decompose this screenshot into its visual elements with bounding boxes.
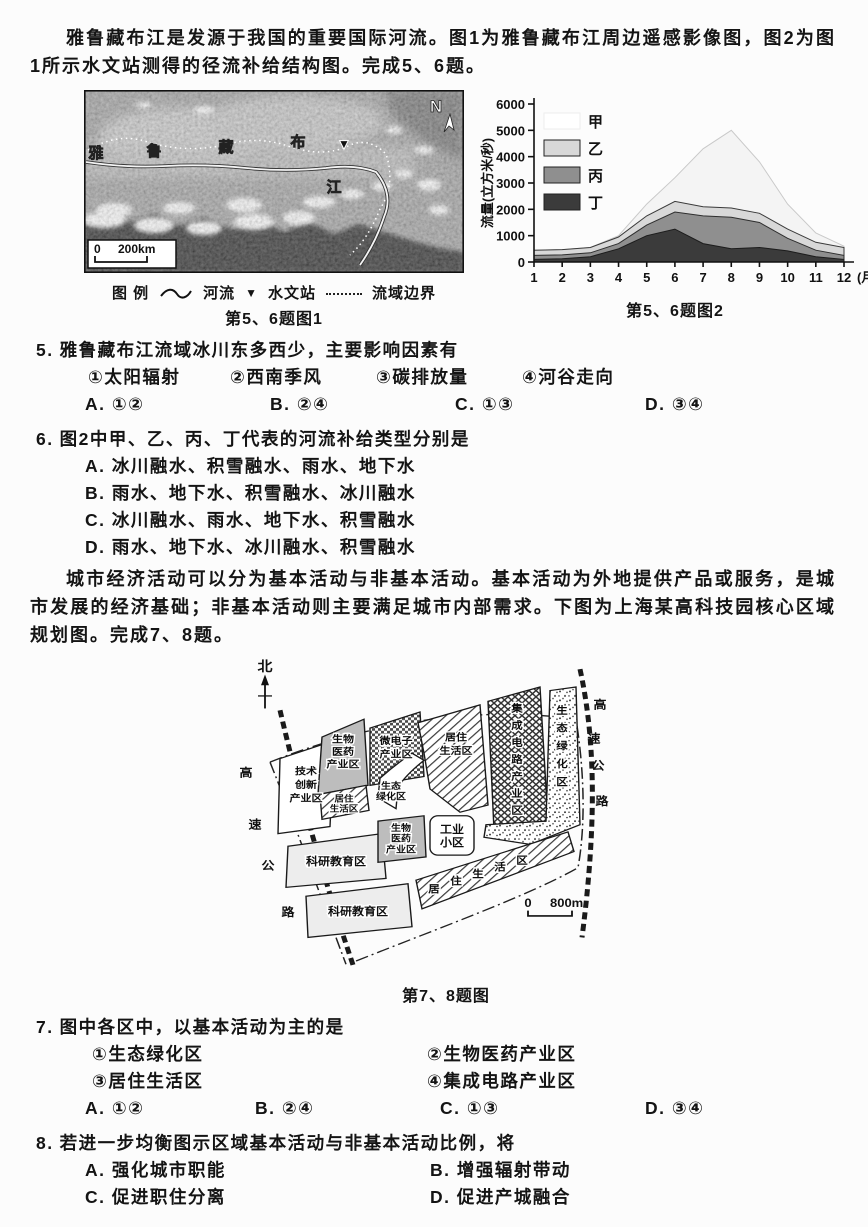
answer-choice: D. ③④ bbox=[645, 1095, 848, 1122]
legend-swatch-甲 bbox=[544, 113, 580, 129]
station-symbol-icon: ▼ bbox=[245, 286, 258, 300]
boundary-symbol-icon bbox=[326, 293, 362, 295]
question-7-suboptions-row2: ③居住生活区 ④集成电路产业区 bbox=[30, 1068, 848, 1095]
answer-choice: D. 雨水、地下水、冰川融水、积雪融水 bbox=[30, 534, 848, 561]
svg-text:公: 公 bbox=[591, 759, 605, 772]
river-char: 布 bbox=[290, 133, 305, 151]
suboption: ②生物医药产业区 bbox=[427, 1041, 848, 1068]
question-7: 7.图中各区中，以基本活动为主的是 ①生态绿化区 ②生物医药产业区 ③居住生活区… bbox=[30, 1014, 848, 1122]
y-tick-label: 2000 bbox=[496, 202, 525, 217]
figure-row: 雅 鲁 藏 布 江 ▼ N 0 200km bbox=[84, 90, 848, 329]
scale-distance: 800m bbox=[550, 897, 583, 910]
svg-text:公: 公 bbox=[261, 859, 275, 872]
north-arrow-icon bbox=[261, 674, 269, 685]
intro-paragraph-2: 城市经济活动可以分为基本活动与非基本活动。基本活动为外地提供产品或服务，是城市发… bbox=[30, 565, 836, 649]
river-symbol-icon bbox=[159, 286, 193, 300]
legend-swatch-乙 bbox=[544, 140, 580, 156]
y-axis-label: 流量(立方米/秒) bbox=[480, 138, 495, 228]
question-5-answers: A. ①② B. ②④ C. ①③ D. ③④ bbox=[30, 391, 848, 418]
svg-text:路: 路 bbox=[281, 905, 295, 919]
figure3-planning-map: 技术创新产业区 生物医药产业区 微电子产业区 居住生活区 集 成 电 路 产 业… bbox=[228, 653, 664, 1006]
tech-park-plan: 技术创新产业区 生物医药产业区 微电子产业区 居住生活区 集 成 电 路 产 业… bbox=[228, 653, 658, 975]
suboption: ④集成电路产业区 bbox=[427, 1068, 848, 1095]
answer-choice: C. 冰川融水、雨水、地下水、积雪融水 bbox=[30, 507, 848, 534]
north-arrow: 北 bbox=[257, 659, 273, 709]
question-5-suboptions: ①太阳辐射 ②西南季风 ③碳排放量 ④河谷走向 bbox=[30, 364, 848, 391]
answer-choice: B. 增强辐射带动 bbox=[430, 1157, 848, 1184]
figure1-satellite: 雅 鲁 藏 布 江 ▼ N 0 200km bbox=[84, 90, 464, 329]
zone-label-eco-center: 生态绿化区 bbox=[376, 780, 407, 802]
y-tick-label: 5000 bbox=[496, 123, 525, 138]
north-label: N bbox=[430, 97, 442, 116]
x-tick-label: 3 bbox=[587, 270, 594, 285]
answer-choice: C. 促进职住分离 bbox=[85, 1184, 430, 1211]
answer-choice: C. ①③ bbox=[455, 391, 645, 418]
suboption: ③居住生活区 bbox=[92, 1068, 427, 1095]
svg-text:生: 生 bbox=[556, 703, 568, 716]
svg-text:产: 产 bbox=[511, 770, 523, 783]
scale-distance: 200km bbox=[118, 242, 155, 256]
question-number: 6. bbox=[36, 429, 54, 449]
question-6: 6.图2中甲、乙、丙、丁代表的河流补给类型分别是 A. 冰川融水、积雪融水、雨水… bbox=[30, 426, 848, 561]
svg-text:高: 高 bbox=[593, 697, 606, 711]
scale-zero: 0 bbox=[94, 242, 101, 256]
question-6-stem: 6.图2中甲、乙、丙、丁代表的河流补给类型分别是 bbox=[30, 426, 848, 453]
question-8-options-row1: A. 强化城市职能 B. 增强辐射带动 bbox=[30, 1157, 848, 1184]
legend-label-丁: 丁 bbox=[588, 195, 603, 212]
answer-choice: B. ②④ bbox=[270, 391, 455, 418]
svg-text:高: 高 bbox=[239, 765, 252, 779]
svg-text:绿: 绿 bbox=[556, 739, 568, 752]
y-tick-label: 0 bbox=[518, 255, 525, 270]
zone-label-sci-north: 科研教育区 bbox=[306, 855, 367, 868]
north-label: 北 bbox=[257, 659, 273, 675]
legend-title: 图 例 bbox=[112, 282, 149, 303]
river-char: 藏 bbox=[218, 138, 233, 156]
svg-text:路: 路 bbox=[595, 794, 609, 808]
river-char: 鲁 bbox=[146, 142, 161, 160]
intro-paragraph-1: 雅鲁藏布江是发源于我国的重要国际河流。图1为雅鲁藏布江周边遥感影像图，图2为图1… bbox=[30, 24, 836, 80]
legend-label-丙: 丙 bbox=[588, 168, 603, 185]
chart-legend: 甲乙丙丁 bbox=[544, 113, 603, 212]
figure3-caption: 第7、8题图 bbox=[228, 982, 664, 1006]
y-tick-label: 3000 bbox=[496, 176, 525, 191]
x-tick-label: 9 bbox=[756, 270, 763, 285]
map-scale: 0 800m bbox=[524, 897, 583, 916]
x-tick-label: 2 bbox=[559, 270, 566, 285]
satellite-image: 雅 鲁 藏 布 江 ▼ N 0 200km bbox=[84, 90, 464, 273]
zone-residential-main[interactable] bbox=[418, 705, 488, 812]
figure2-chart: 0100020003000400050006000123456789101112… bbox=[476, 90, 868, 321]
y-tick-label: 1000 bbox=[496, 229, 525, 244]
svg-text:电: 电 bbox=[511, 736, 523, 749]
question-7-stem: 7.图中各区中，以基本活动为主的是 bbox=[30, 1014, 848, 1041]
question-8-options-row2: C. 促进职住分离 D. 促进产城融合 bbox=[30, 1184, 848, 1211]
svg-text:居: 居 bbox=[428, 883, 440, 895]
question-text: 图2中甲、乙、丙、丁代表的河流补给类型分别是 bbox=[60, 429, 470, 449]
legend-swatch-丁 bbox=[544, 194, 580, 210]
answer-choice: D. 促进产城融合 bbox=[430, 1184, 848, 1211]
svg-text:业: 业 bbox=[511, 787, 523, 800]
legend-swatch-丙 bbox=[544, 167, 580, 183]
suboption: ④河谷走向 bbox=[522, 364, 848, 391]
answer-choice: B. ②④ bbox=[255, 1095, 440, 1122]
svg-text:生: 生 bbox=[472, 867, 484, 880]
question-8-stem: 8.若进一步均衡图示区域基本活动与非基本活动比例，将 bbox=[30, 1130, 848, 1157]
x-tick-label: 11 bbox=[809, 270, 823, 285]
question-text: 若进一步均衡图示区域基本活动与非基本活动比例，将 bbox=[60, 1133, 516, 1153]
question-7-answers: A. ①② B. ②④ C. ①③ D. ③④ bbox=[30, 1095, 848, 1122]
svg-text:态: 态 bbox=[556, 721, 568, 734]
svg-text:区: 区 bbox=[511, 805, 523, 817]
x-tick-label: 8 bbox=[728, 270, 735, 285]
zone-label-sci-south: 科研教育区 bbox=[328, 905, 389, 918]
legend-river-label: 河流 bbox=[203, 282, 235, 303]
svg-text:住: 住 bbox=[450, 874, 462, 887]
runoff-stacked-area-chart: 0100020003000400050006000123456789101112… bbox=[476, 90, 868, 290]
x-tick-label: 4 bbox=[615, 270, 623, 285]
svg-text:速: 速 bbox=[587, 731, 601, 745]
legend-label-乙: 乙 bbox=[588, 141, 603, 158]
svg-text:区: 区 bbox=[516, 855, 528, 867]
question-5-stem: 5.雅鲁藏布江流域冰川东多西少，主要影响因素有 bbox=[30, 337, 848, 364]
answer-choice: A. ①② bbox=[85, 1095, 255, 1122]
question-5: 5.雅鲁藏布江流域冰川东多西少，主要影响因素有 ①太阳辐射 ②西南季风 ③碳排放… bbox=[30, 337, 848, 418]
question-6-options: A. 冰川融水、积雪融水、雨水、地下水 B. 雨水、地下水、积雪融水、冰川融水 … bbox=[30, 453, 848, 561]
svg-text:化: 化 bbox=[556, 757, 568, 770]
suboption: ①太阳辐射 bbox=[88, 364, 230, 391]
x-tick-label: 7 bbox=[699, 270, 706, 285]
scale-zero: 0 bbox=[524, 897, 531, 910]
river-char: 雅 bbox=[87, 144, 103, 162]
suboption: ①生态绿化区 bbox=[92, 1041, 427, 1068]
x-axis-unit: (月) bbox=[857, 270, 868, 285]
question-7-suboptions-row1: ①生态绿化区 ②生物医药产业区 bbox=[30, 1041, 848, 1068]
question-text: 雅鲁藏布江流域冰川东多西少，主要影响因素有 bbox=[60, 340, 459, 360]
exam-page: 雅鲁藏布江是发源于我国的重要国际河流。图1为雅鲁藏布江周边遥感影像图，图2为图1… bbox=[0, 0, 868, 1211]
answer-choice: B. 雨水、地下水、积雪融水、冰川融水 bbox=[30, 480, 848, 507]
answer-choice: C. ①③ bbox=[440, 1095, 645, 1122]
legend-label-甲: 甲 bbox=[588, 114, 603, 131]
answer-choice: A. 强化城市职能 bbox=[85, 1157, 430, 1184]
figure1-caption: 第5、6题图1 bbox=[84, 305, 464, 329]
question-number: 5. bbox=[36, 340, 54, 360]
river-char: 江 bbox=[326, 178, 341, 196]
x-tick-label: 10 bbox=[780, 270, 794, 285]
y-tick-label: 4000 bbox=[496, 150, 525, 165]
question-text: 图中各区中，以基本活动为主的是 bbox=[60, 1017, 345, 1037]
legend-boundary-label: 流域边界 bbox=[372, 282, 436, 303]
hydrologic-station-icon: ▼ bbox=[338, 137, 350, 151]
answer-choice: A. 冰川融水、积雪融水、雨水、地下水 bbox=[30, 453, 848, 480]
answer-choice: D. ③④ bbox=[645, 391, 848, 418]
map-scale: 0 200km bbox=[88, 240, 176, 268]
x-tick-label: 5 bbox=[643, 270, 650, 285]
question-number: 8. bbox=[36, 1133, 54, 1153]
question-number: 7. bbox=[36, 1017, 54, 1037]
x-tick-label: 12 bbox=[837, 270, 851, 285]
legend-station-label: 水文站 bbox=[268, 282, 316, 303]
svg-text:速: 速 bbox=[248, 817, 262, 831]
scale-bar bbox=[528, 911, 572, 916]
x-tick-label: 1 bbox=[530, 270, 537, 285]
suboption: ②西南季风 bbox=[230, 364, 376, 391]
figure1-legend: 图 例 河流 ▼ 水文站 流域边界 bbox=[84, 282, 464, 303]
svg-text:区: 区 bbox=[556, 776, 568, 788]
svg-text:活: 活 bbox=[494, 860, 506, 873]
suboption: ③碳排放量 bbox=[376, 364, 522, 391]
x-tick-label: 6 bbox=[671, 270, 678, 285]
svg-text:路: 路 bbox=[511, 753, 523, 766]
answer-choice: A. ①② bbox=[85, 391, 270, 418]
question-8: 8.若进一步均衡图示区域基本活动与非基本活动比例，将 A. 强化城市职能 B. … bbox=[30, 1130, 848, 1211]
svg-text:成: 成 bbox=[511, 719, 523, 732]
figure2-caption: 第5、6题图2 bbox=[476, 297, 868, 321]
y-tick-label: 6000 bbox=[496, 97, 525, 112]
svg-text:集: 集 bbox=[510, 702, 523, 715]
